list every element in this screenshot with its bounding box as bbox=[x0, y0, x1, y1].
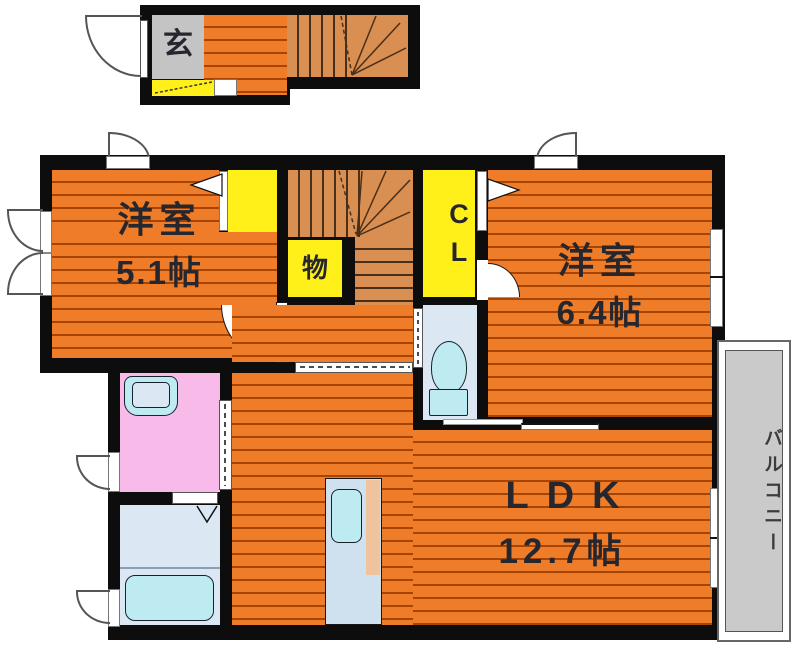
stairs-upper-treads bbox=[288, 170, 360, 237]
casement-lower-panel bbox=[7, 293, 43, 295]
bedroom2-side-window-divider bbox=[710, 276, 723, 278]
casement-lower-arc bbox=[7, 252, 43, 293]
entrance-stairs-winder bbox=[351, 15, 408, 77]
washroom-folding-door bbox=[219, 400, 232, 490]
bedroom1-closet-door-leaf bbox=[219, 171, 228, 231]
casement-upper-arc bbox=[7, 211, 43, 252]
ldk-floor-main bbox=[413, 430, 712, 625]
bedroom1-top-window bbox=[106, 156, 150, 169]
toilet-bowl bbox=[431, 341, 467, 393]
ldk-size: 12.7帖 bbox=[413, 530, 712, 574]
entrance-step-yellow bbox=[152, 80, 214, 96]
kitchen-sink bbox=[331, 489, 362, 543]
entrance-stairs-treads bbox=[287, 15, 351, 77]
bedroom2-name: 洋室 bbox=[488, 238, 712, 283]
storage-label: 物 bbox=[288, 252, 342, 285]
entrance-step-white bbox=[214, 79, 237, 96]
bedroom1-size: 5.1帖 bbox=[52, 252, 267, 293]
ldk-floor-west bbox=[232, 373, 413, 625]
genkan-label: 玄 bbox=[152, 26, 204, 64]
toilet-door bbox=[413, 308, 423, 368]
ldk-name: LDK bbox=[413, 473, 712, 521]
hallway-floor bbox=[232, 305, 413, 362]
kitchen-counter-edge bbox=[366, 480, 380, 575]
bedroom2-ldk-slider-panel1 bbox=[443, 419, 523, 425]
bedroom1-closet bbox=[228, 170, 277, 232]
bathtub bbox=[125, 575, 214, 621]
bedroom2-doorway bbox=[477, 260, 488, 300]
floorplan: 玄 洋室 5.1帖 物 CL 洋室 6.4帖 bbox=[0, 0, 800, 649]
entrance-door-swing-arc bbox=[85, 16, 141, 77]
cl-label: CL bbox=[423, 192, 475, 282]
bedroom2-top-window bbox=[534, 156, 578, 169]
stairs-lower-treads bbox=[355, 237, 413, 305]
stairs-winder bbox=[360, 170, 413, 237]
bedroom2-side-window bbox=[710, 229, 723, 327]
bedroom2-ldk-slider-panel2 bbox=[521, 423, 599, 430]
balcony-label: バルコニー bbox=[725, 398, 783, 588]
toilet-tank bbox=[429, 389, 468, 416]
cl-door-leaf bbox=[477, 171, 487, 231]
washbasin-bowl bbox=[132, 382, 170, 408]
hall-ldk-sliding-door bbox=[295, 362, 413, 373]
entrance-door-leaf bbox=[140, 20, 148, 78]
bedroom2-size: 6.4帖 bbox=[488, 292, 712, 333]
bathroom-divider bbox=[120, 567, 220, 569]
bathroom-door bbox=[172, 492, 218, 504]
